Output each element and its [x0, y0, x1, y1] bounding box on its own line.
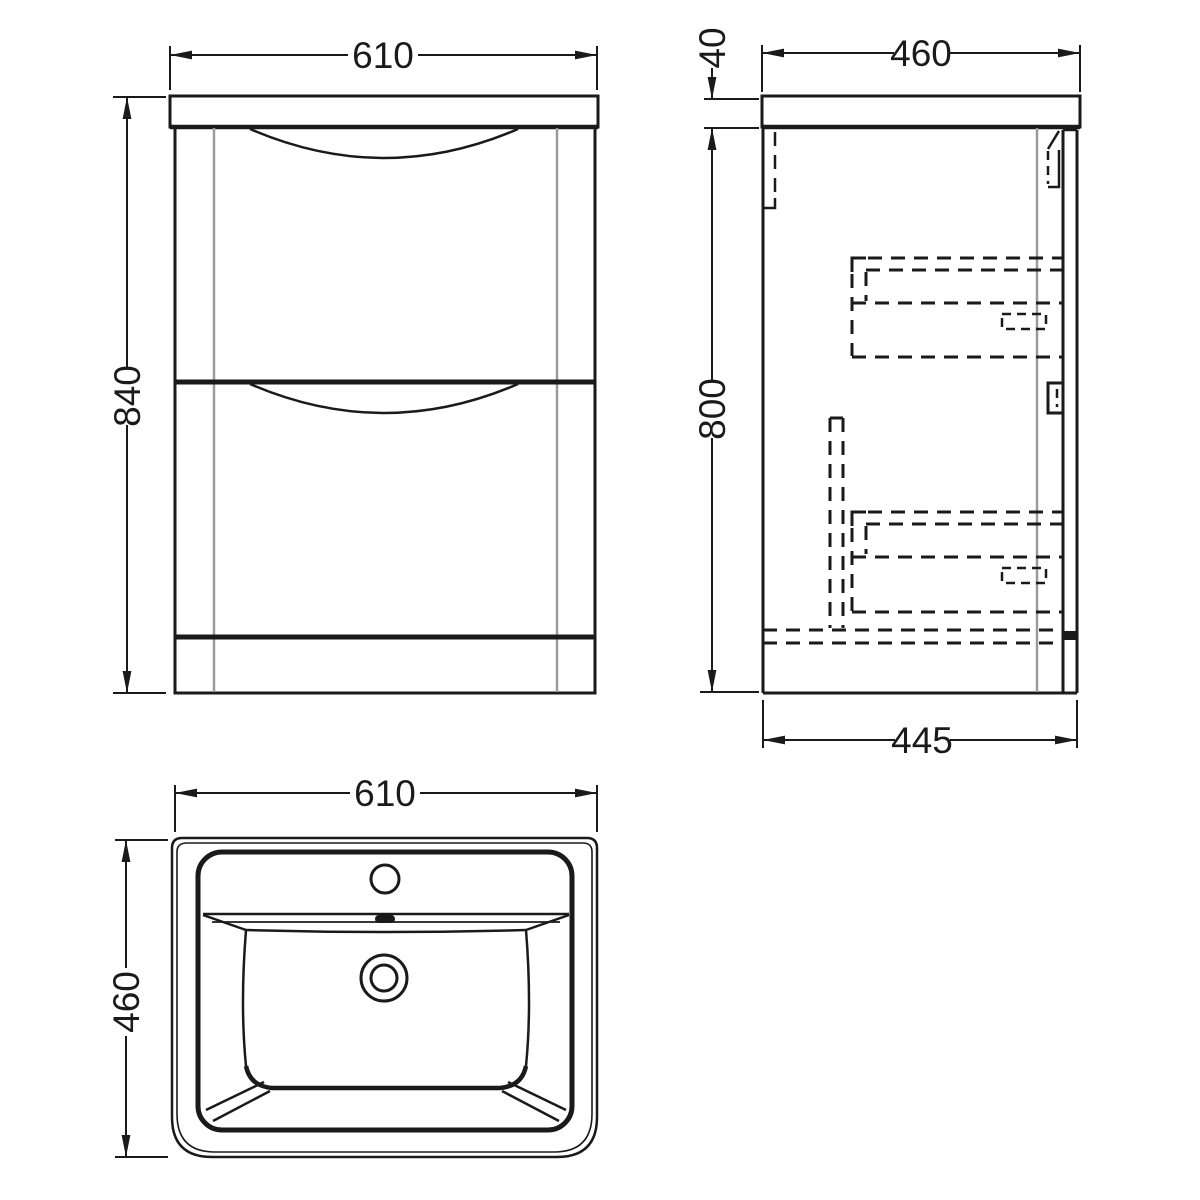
dim-label-plan-depth: 460	[106, 971, 147, 1033]
dim-label-plan-width: 610	[354, 773, 416, 814]
plan-tap-hole	[371, 865, 399, 893]
plan-drain-inner	[371, 965, 397, 991]
technical-drawing-vanity-unit: 610 840 40 460	[0, 0, 1200, 1200]
dim-label-front-height: 840	[107, 365, 148, 427]
dim-side-height: 800	[692, 128, 759, 692]
dim-front-width: 610	[170, 35, 597, 90]
plan-chamfer-right-1	[508, 1082, 566, 1110]
side-lower-drawer-hidden	[852, 512, 1063, 612]
dim-label-front-width: 610	[352, 35, 414, 76]
dimensions: 610 840 40 460	[106, 27, 1080, 1157]
dim-side-bottom-depth: 445	[763, 700, 1077, 761]
front-worktop	[170, 96, 598, 127]
dim-label-side-worktop-thickness: 40	[692, 27, 733, 68]
plan-bowl-floor-edge	[246, 1066, 526, 1088]
side-back-rail-cap	[763, 198, 775, 208]
dim-side-depth: 460	[762, 33, 1080, 92]
drawing-svg: 610 840 40 460	[0, 0, 1200, 1200]
plan-drain-outer	[361, 955, 407, 1001]
dim-plan-depth: 460	[106, 840, 168, 1157]
side-front-notch	[1062, 631, 1078, 640]
side-top-bracket	[1048, 150, 1059, 187]
side-upper-drawer-runner	[1002, 314, 1046, 329]
plan-chamfer-right-2	[502, 1091, 559, 1121]
plan-bowl-wall-left	[243, 930, 246, 1066]
plan-chamfer-left-1	[206, 1082, 264, 1110]
dim-label-side-height: 800	[692, 378, 733, 440]
plan-view	[172, 838, 597, 1157]
dim-front-height: 840	[107, 97, 166, 693]
front-drawer2-handle-curve	[250, 384, 518, 413]
dim-label-side-bottom-depth: 445	[891, 720, 953, 761]
plan-chamfer-left-2	[213, 1091, 270, 1121]
dim-side-worktop-thickness: 40	[692, 27, 759, 128]
side-upper-drawer-hidden	[852, 258, 1063, 357]
side-lower-drawer-runner	[1002, 568, 1046, 583]
plan-overflow-slot	[375, 915, 395, 923]
side-top-bracket-diagonal	[1048, 131, 1059, 149]
side-upper-drawer-corner	[852, 258, 866, 272]
dim-label-side-depth: 460	[890, 33, 952, 74]
side-lower-drawer-corner	[852, 512, 866, 526]
front-cabinet-body	[175, 127, 595, 693]
plan-bowl-wall-right	[526, 930, 529, 1066]
plan-bowl-top-edge	[246, 930, 526, 932]
dim-plan-width: 610	[175, 773, 597, 832]
front-view	[170, 96, 598, 693]
front-drawer1-handle-curve	[250, 129, 518, 158]
side-view	[762, 96, 1080, 693]
side-worktop	[762, 96, 1080, 127]
side-mid-bracket	[1048, 383, 1063, 413]
